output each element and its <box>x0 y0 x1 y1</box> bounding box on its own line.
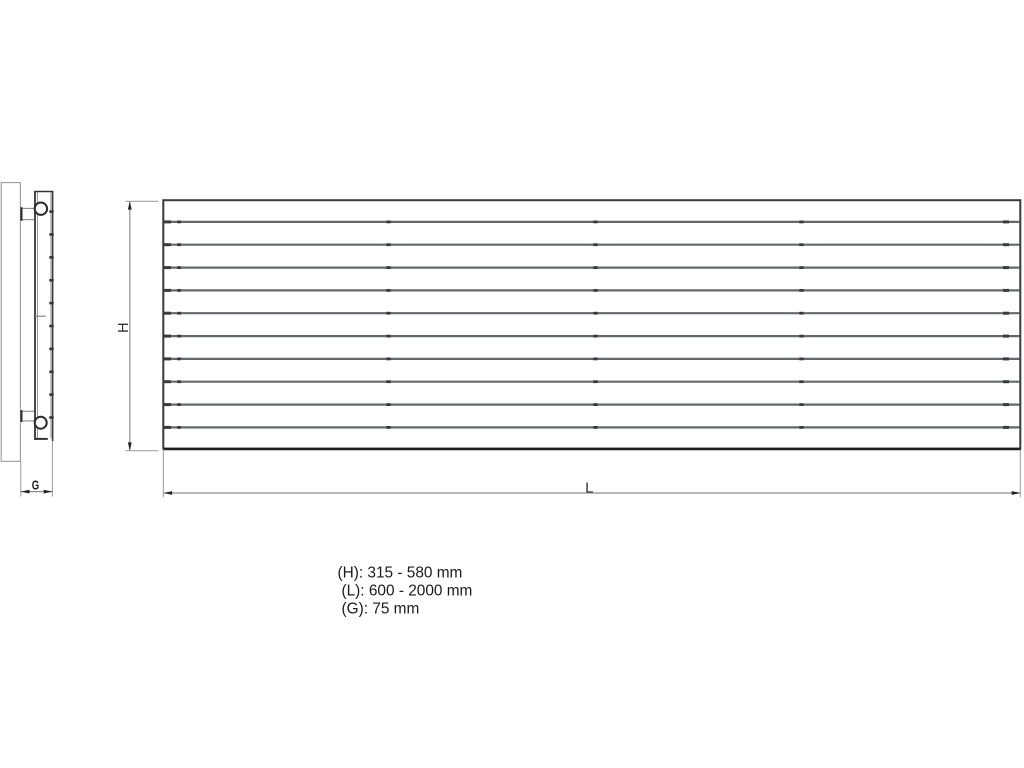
svg-text:(G): 75 mm: (G): 75 mm <box>342 600 420 617</box>
svg-text:L: L <box>585 479 593 496</box>
svg-text:(H): 315 - 580 mm: (H): 315 - 580 mm <box>338 565 463 582</box>
svg-text:G: G <box>32 478 39 493</box>
svg-text:H: H <box>116 322 132 332</box>
svg-text:(L): 600 - 2000 mm: (L): 600 - 2000 mm <box>342 582 473 599</box>
